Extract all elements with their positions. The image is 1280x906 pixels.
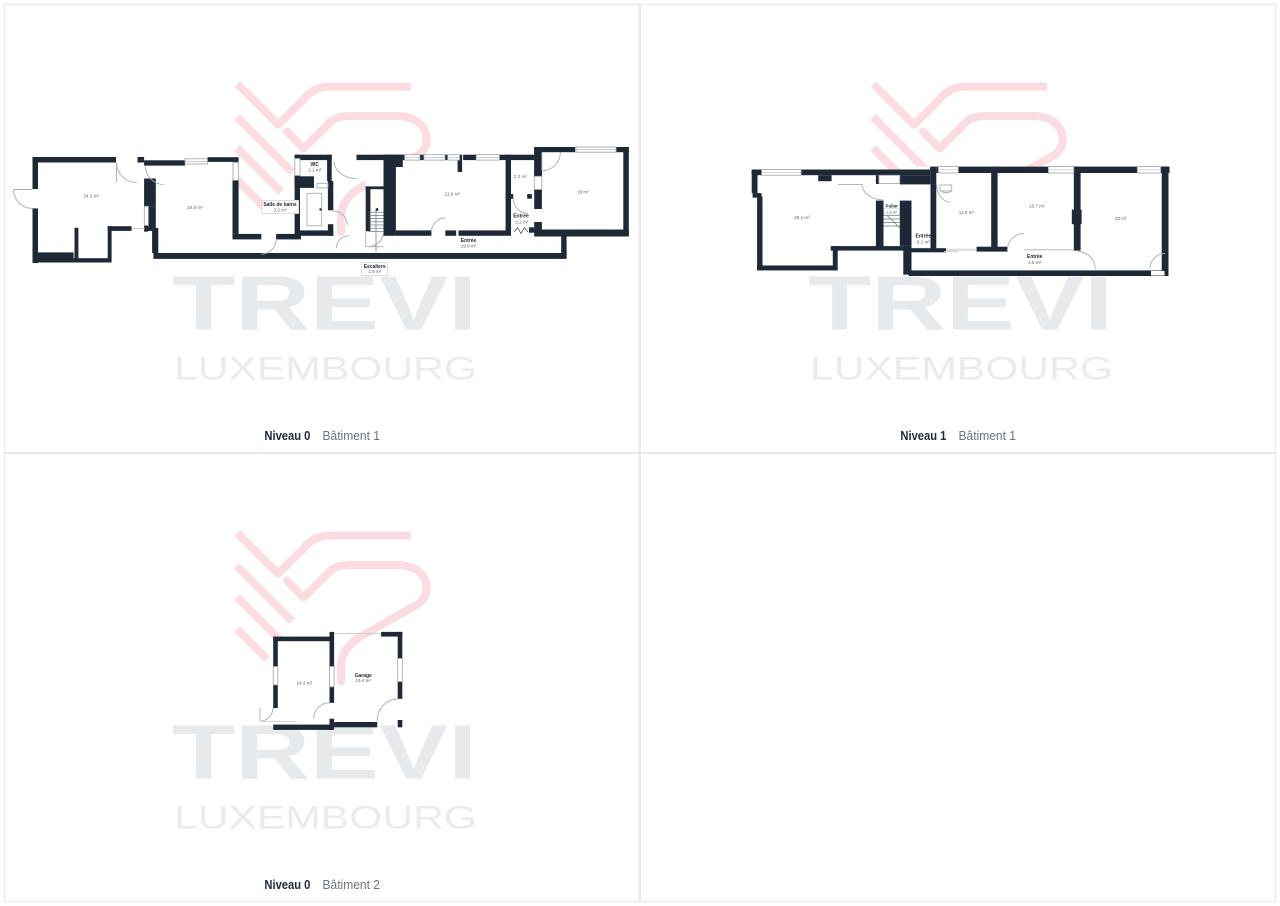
svg-text:23 m²: 23 m² xyxy=(1115,216,1127,221)
svg-text:Entrée: Entrée xyxy=(513,214,529,220)
svg-text:Bâtiment 1: Bâtiment 1 xyxy=(323,428,381,443)
svg-text:Entrée: Entrée xyxy=(1027,254,1043,260)
svg-text:Garage: Garage xyxy=(355,673,372,679)
svg-text:8.1 m²: 8.1 m² xyxy=(917,240,930,245)
svg-text:2.2 m²: 2.2 m² xyxy=(514,174,527,179)
svg-text:Niveau 0: Niveau 0 xyxy=(264,428,310,443)
svg-text:2.1 m²: 2.1 m² xyxy=(308,168,321,173)
svg-text:26.1 m²: 26.1 m² xyxy=(794,215,810,220)
svg-text:24.0 m²: 24.0 m² xyxy=(187,205,203,210)
svg-text:19.8 m²: 19.8 m² xyxy=(461,244,477,249)
svg-text:Palier: Palier xyxy=(886,204,899,209)
svg-text:Bâtiment 2: Bâtiment 2 xyxy=(323,877,381,892)
svg-text:Salle de bains: Salle de bains xyxy=(263,202,297,208)
svg-text:14.3 m²: 14.3 m² xyxy=(297,681,313,686)
svg-text:Niveau 1: Niveau 1 xyxy=(900,428,946,443)
svg-text:18 m²: 18 m² xyxy=(577,189,589,194)
svg-text:24.3 m²: 24.3 m² xyxy=(84,194,100,199)
svg-text:Entrée: Entrée xyxy=(916,234,932,240)
svg-text:1.6 m²: 1.6 m² xyxy=(886,210,898,215)
svg-text:Niveau 0: Niveau 0 xyxy=(264,877,310,892)
svg-text:4.5 m²: 4.5 m² xyxy=(1028,260,1041,265)
svg-text:11.6 m²: 11.6 m² xyxy=(959,210,975,215)
svg-text:WC: WC xyxy=(311,162,320,168)
svg-text:Entrée: Entrée xyxy=(461,238,477,244)
svg-text:2.2 m²: 2.2 m² xyxy=(515,220,528,225)
svg-text:21.9 m²: 21.9 m² xyxy=(445,192,461,197)
svg-text:16.7 m²: 16.7 m² xyxy=(1029,203,1045,208)
svg-text:Escaliers: Escaliers xyxy=(364,264,386,270)
svg-text:3.2 m²: 3.2 m² xyxy=(273,208,286,213)
svg-text:Bâtiment 1: Bâtiment 1 xyxy=(959,428,1017,443)
